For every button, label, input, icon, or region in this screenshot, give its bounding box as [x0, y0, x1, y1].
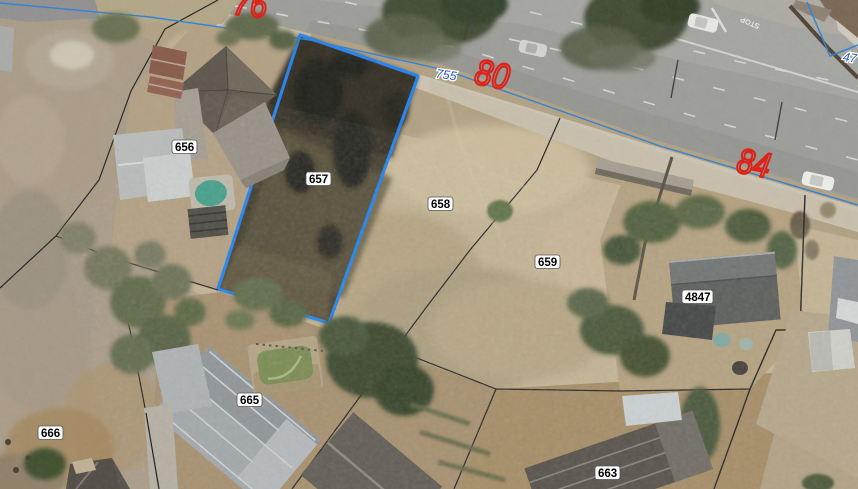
- svg-text:658: 658: [431, 199, 451, 211]
- svg-text:656: 656: [175, 142, 194, 154]
- svg-text:659: 659: [538, 257, 557, 269]
- svg-text:76: 76: [231, 0, 270, 26]
- svg-text:665: 665: [240, 395, 260, 407]
- svg-text:657: 657: [309, 174, 328, 186]
- svg-text:755: 755: [435, 67, 458, 84]
- svg-text:47: 47: [842, 50, 858, 66]
- svg-text:663: 663: [598, 468, 617, 480]
- svg-text:666: 666: [41, 428, 60, 440]
- svg-text:4847: 4847: [685, 292, 711, 304]
